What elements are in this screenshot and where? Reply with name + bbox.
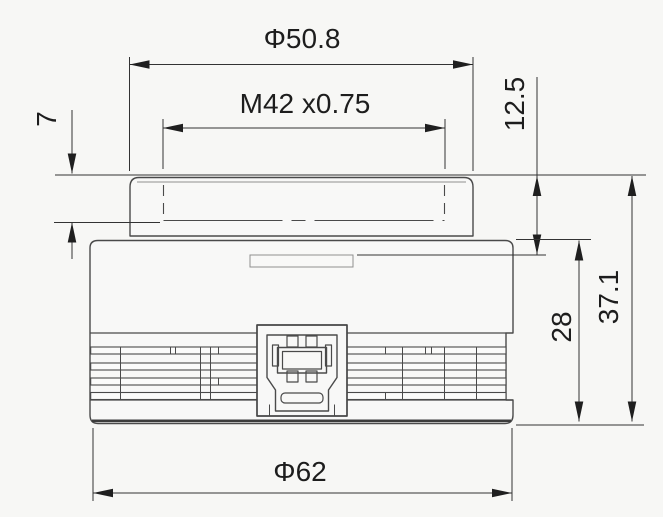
label-top-diameter: Φ50.8	[264, 23, 341, 54]
connector-housing	[257, 325, 347, 416]
mount-outline	[130, 178, 473, 237]
lens-mount-cylinder	[130, 178, 473, 237]
label-body-diameter: Φ62	[273, 456, 326, 487]
dim-thread	[163, 119, 445, 169]
label-mount-height: 12.5	[499, 77, 530, 132]
label-thread: M42 x0.75	[240, 88, 371, 119]
dim-body-height	[516, 240, 644, 426]
drawing-canvas: Φ50.8 M42 x0.75 7 12.5 28 37.1 Φ62	[0, 0, 663, 517]
io-connector	[257, 325, 347, 416]
label-thread-depth: 7	[31, 111, 62, 127]
label-body-height: 28	[546, 311, 577, 342]
dim-overall-height	[628, 176, 637, 422]
technical-drawing: Φ50.8 M42 x0.75 7 12.5 28 37.1 Φ62	[0, 0, 663, 517]
label-overall-height: 37.1	[593, 270, 624, 325]
